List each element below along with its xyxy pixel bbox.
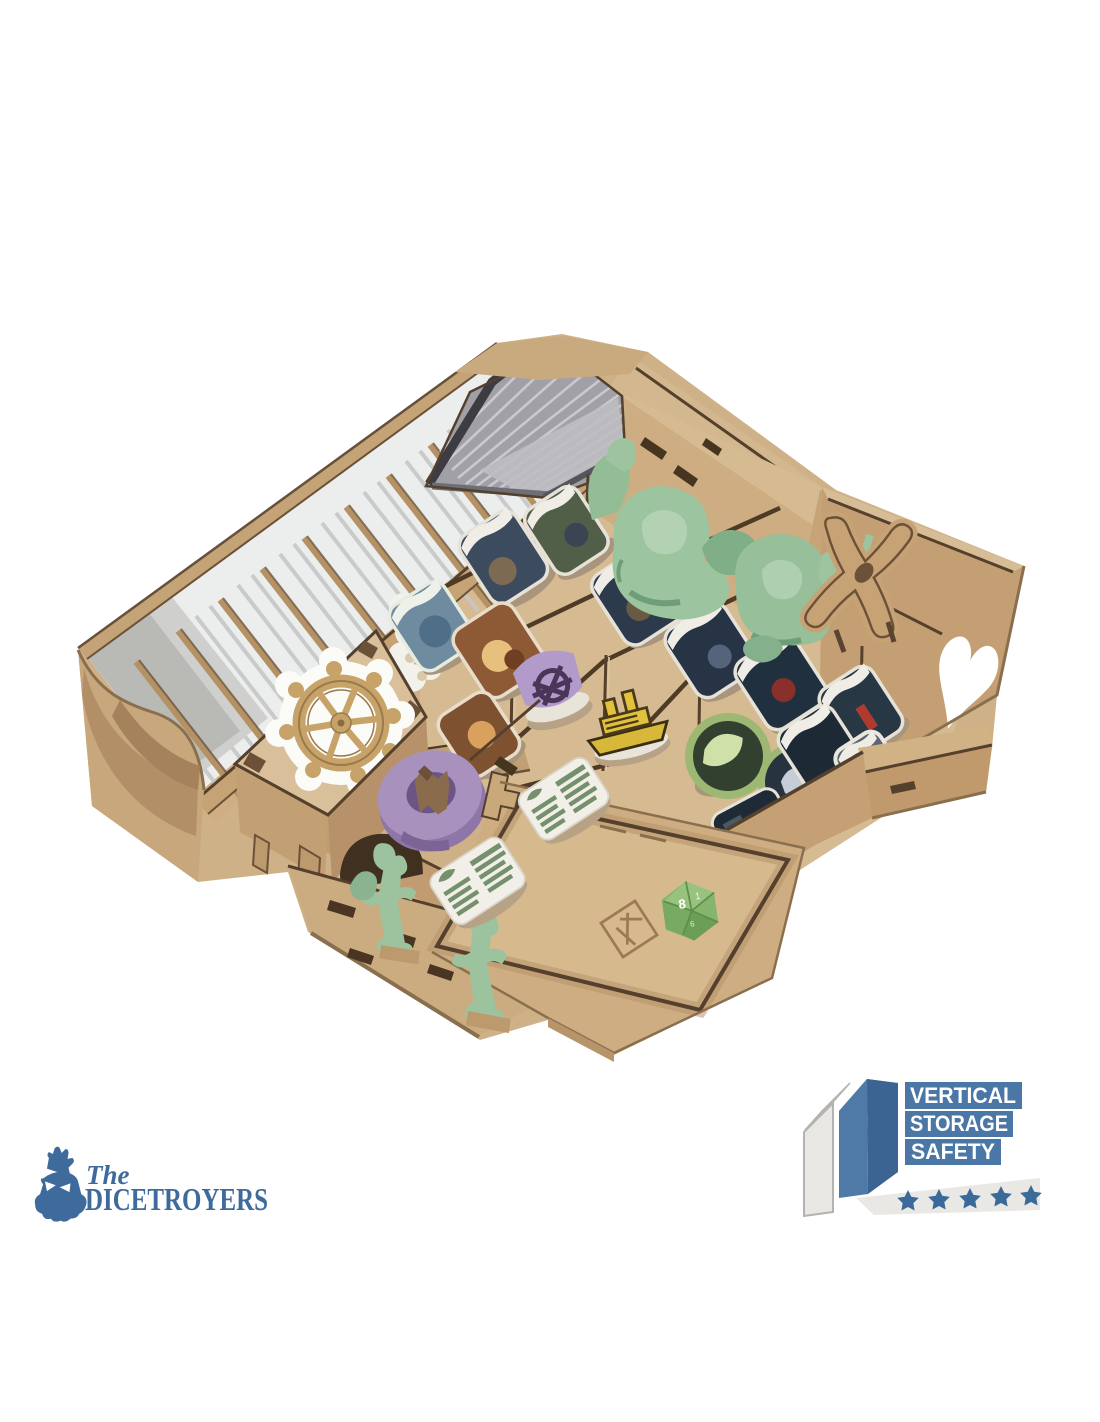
svg-text:DICETROYERS: DICETROYERS bbox=[85, 1181, 268, 1217]
svg-text:STORAGE: STORAGE bbox=[910, 1111, 1008, 1136]
svg-text:SAFETY: SAFETY bbox=[911, 1139, 995, 1164]
svg-text:VERTICAL: VERTICAL bbox=[910, 1083, 1016, 1108]
